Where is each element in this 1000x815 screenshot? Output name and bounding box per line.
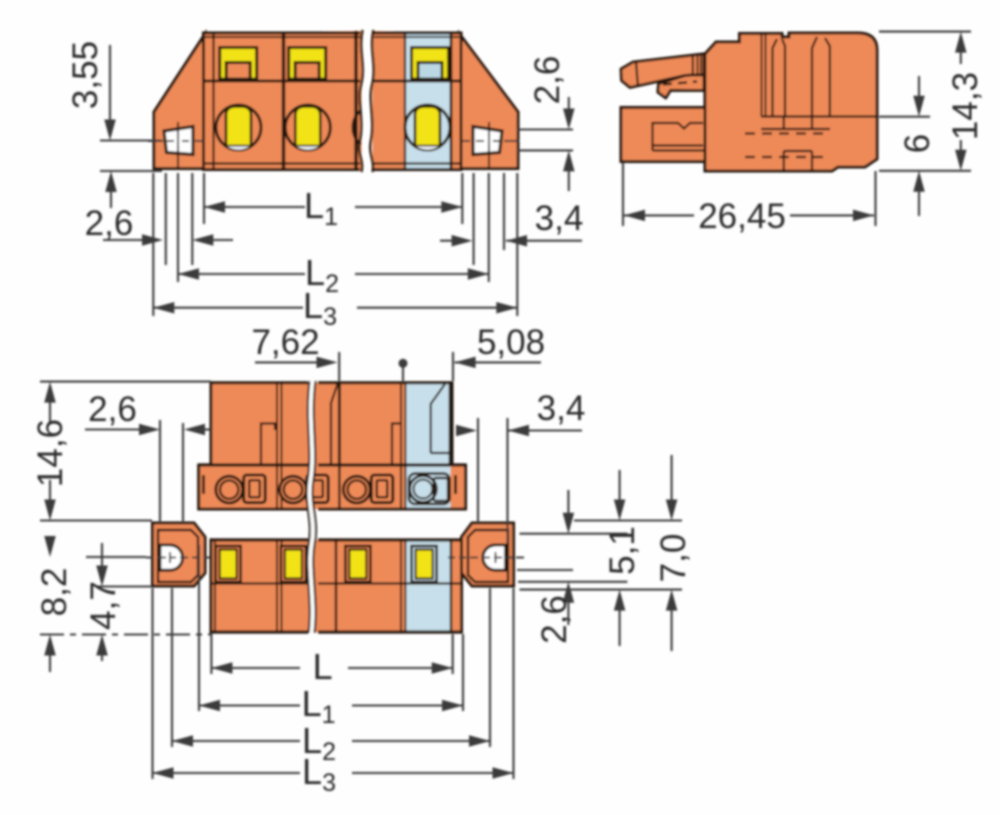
svg-text:5,08: 5,08 — [477, 323, 545, 362]
svg-text:7,0: 7,0 — [654, 534, 693, 583]
svg-text:8,2: 8,2 — [35, 568, 74, 617]
svg-text:3,55: 3,55 — [66, 41, 105, 109]
svg-text:6: 6 — [898, 134, 937, 153]
svg-text:4,7: 4,7 — [84, 581, 123, 630]
svg-text:L: L — [313, 646, 333, 687]
svg-text:2,6: 2,6 — [535, 595, 574, 644]
svg-text:14,3: 14,3 — [946, 72, 985, 140]
svg-text:3,4: 3,4 — [537, 389, 586, 428]
svg-text:2,6: 2,6 — [528, 56, 567, 105]
svg-text:2,6: 2,6 — [85, 204, 134, 243]
svg-text:5,1: 5,1 — [603, 526, 642, 575]
svg-text:3,4: 3,4 — [535, 199, 584, 238]
svg-text:14,6: 14,6 — [31, 419, 70, 487]
svg-text:7,62: 7,62 — [251, 323, 319, 362]
svg-text:26,45: 26,45 — [698, 197, 786, 236]
svg-text:2,6: 2,6 — [88, 390, 137, 429]
